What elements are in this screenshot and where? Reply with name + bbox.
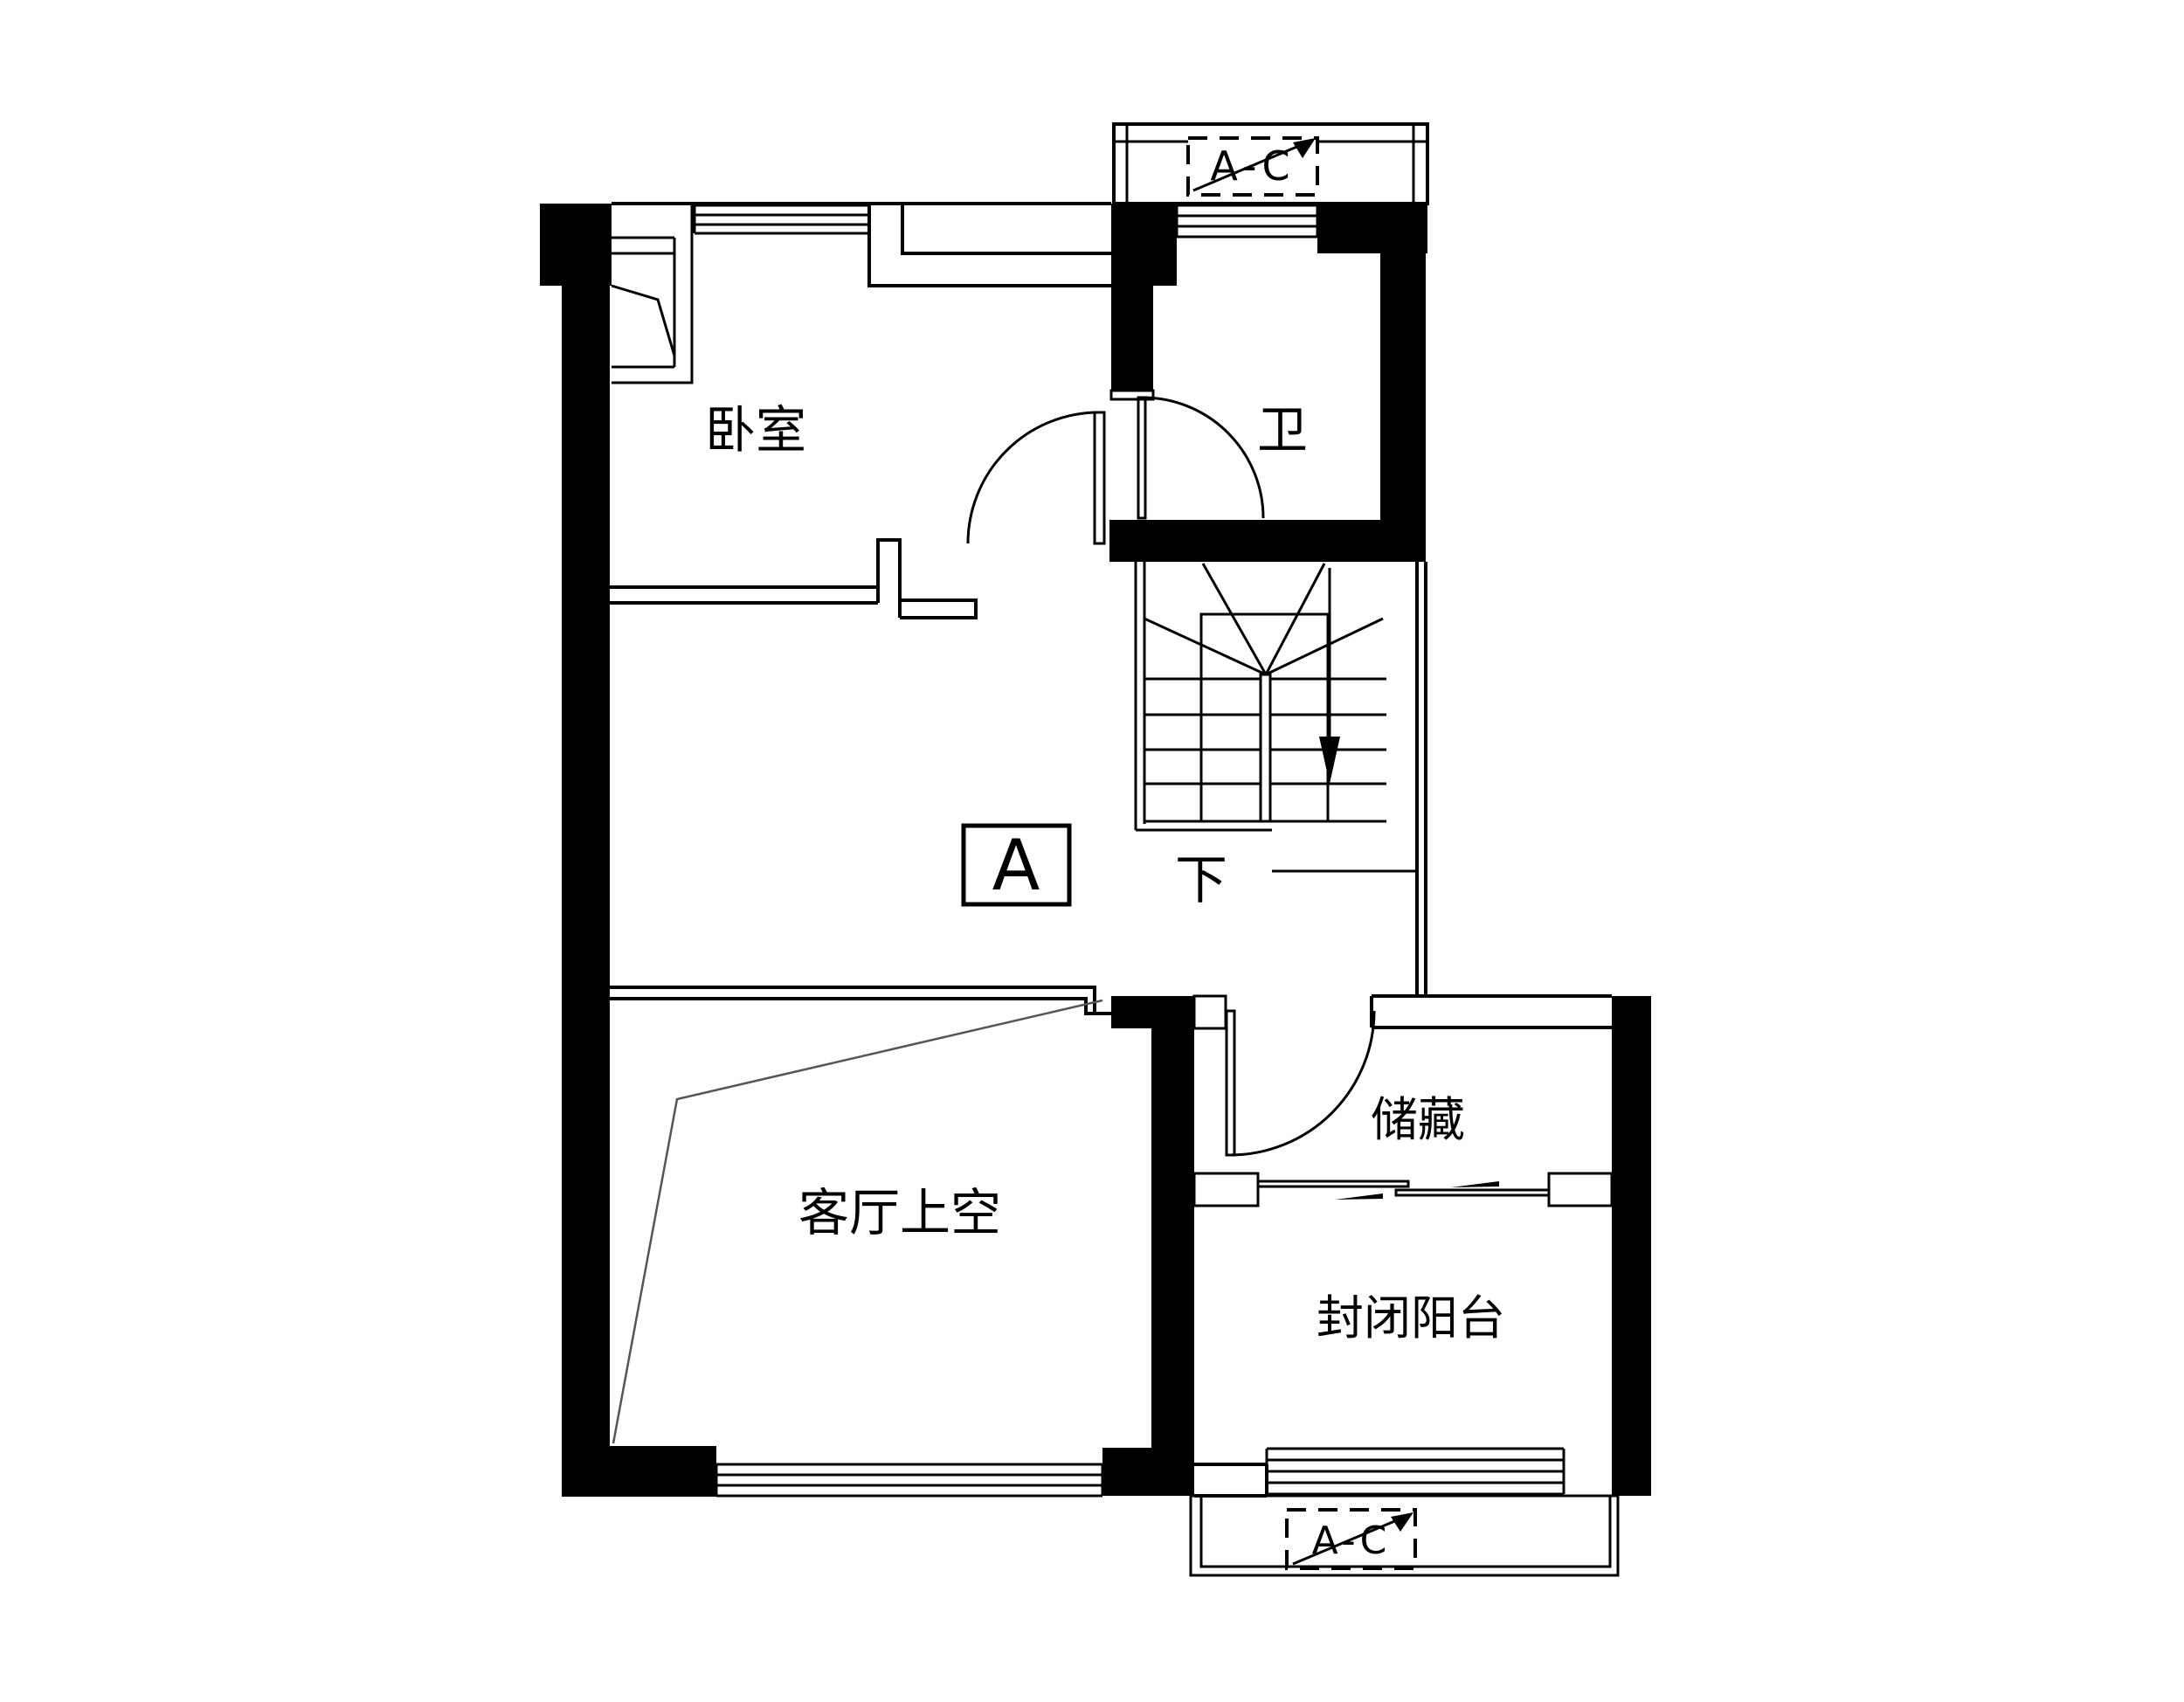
balcony-platform-inner xyxy=(1201,1496,1610,1567)
window-balcony-south xyxy=(1267,1449,1564,1494)
balcony-platform-outer xyxy=(1191,1496,1618,1575)
wall-living-north-2 xyxy=(607,999,1095,1014)
section-marker: A xyxy=(964,825,1069,906)
bathroom-label: 卫 xyxy=(1257,400,1308,460)
stairs xyxy=(1136,562,1417,871)
window-living-south xyxy=(716,1464,1102,1496)
sliding-door-jamb-right xyxy=(1549,1173,1612,1206)
sliding-door-arrow-right xyxy=(1451,1181,1499,1187)
wall-bath-east xyxy=(1380,253,1426,520)
wall-bottom-mid-block xyxy=(1102,1448,1194,1496)
wall-storage-north xyxy=(1372,996,1612,1027)
storage-door-leaf xyxy=(1227,1011,1234,1155)
wall-west-column xyxy=(562,204,610,1446)
bulkhead-outer xyxy=(869,204,1111,286)
stair-west-wall xyxy=(1136,562,1144,830)
wall-bath-south-band xyxy=(1109,520,1426,562)
bedroom-label: 卧室 xyxy=(705,400,806,460)
wall-bottom-left-block xyxy=(562,1446,716,1497)
doors xyxy=(968,398,1612,1206)
ac-top-label: A-C xyxy=(1210,142,1295,190)
stair-direction-arrow-head xyxy=(1319,737,1340,784)
wall-hall-south-stub xyxy=(1111,996,1194,1028)
wall-stair-east xyxy=(1417,562,1426,996)
stair-winder-lines xyxy=(1144,564,1383,675)
sliding-door-panel-left xyxy=(1258,1181,1408,1187)
bedroom-door-leaf xyxy=(1095,412,1104,543)
floor-plan-canvas: A-C A-C A 卧室 卫 下 客厅上空 储藏 封闭阳台 xyxy=(0,0,2184,1702)
bedroom-door-arc xyxy=(968,412,1099,543)
wall-bath-west-upper xyxy=(1111,204,1177,286)
bathroom-door-leaf xyxy=(1138,398,1145,518)
wall-bath-west-stub xyxy=(1111,286,1153,391)
stair-center-divider xyxy=(1261,675,1270,821)
storage-door-arc xyxy=(1230,1011,1374,1155)
balcony-label: 封闭阳台 xyxy=(1317,1290,1505,1346)
wall-living-east-column xyxy=(1151,1028,1194,1448)
storage-door-jamb xyxy=(1194,996,1226,1028)
wall-bedroom-south-step xyxy=(878,540,900,618)
stair-opening-outline xyxy=(1201,614,1328,821)
wall-bath-east-upper xyxy=(1317,204,1427,253)
section-marker-label: A xyxy=(992,825,1040,906)
sliding-door-panel-right xyxy=(1396,1190,1549,1195)
wall-bedroom-south-3 xyxy=(900,600,976,618)
stairs-down-label: 下 xyxy=(1175,850,1227,911)
window-bath-north xyxy=(1177,205,1317,237)
ac-bottom-label: A-C xyxy=(1312,1519,1392,1563)
bedroom-closet xyxy=(612,205,692,383)
wall-east-column xyxy=(1612,996,1651,1496)
sliding-door-arrow-left xyxy=(1335,1193,1383,1200)
storage-label: 储藏 xyxy=(1371,1092,1465,1147)
wall-balcony-west xyxy=(1194,1464,1267,1496)
living-void-label: 客厅上空 xyxy=(798,1183,1001,1242)
ac-unit-bottom-arrowhead xyxy=(1391,1512,1413,1532)
window-bedroom-north xyxy=(695,205,869,233)
sliding-door-jamb-left xyxy=(1194,1173,1258,1206)
bathroom-door-arc xyxy=(1143,398,1263,518)
bulkhead-inner xyxy=(902,204,1111,253)
floor-plan-page: A-C A-C A 卧室 卫 下 客厅上空 储藏 封闭阳台 xyxy=(0,0,2184,1702)
